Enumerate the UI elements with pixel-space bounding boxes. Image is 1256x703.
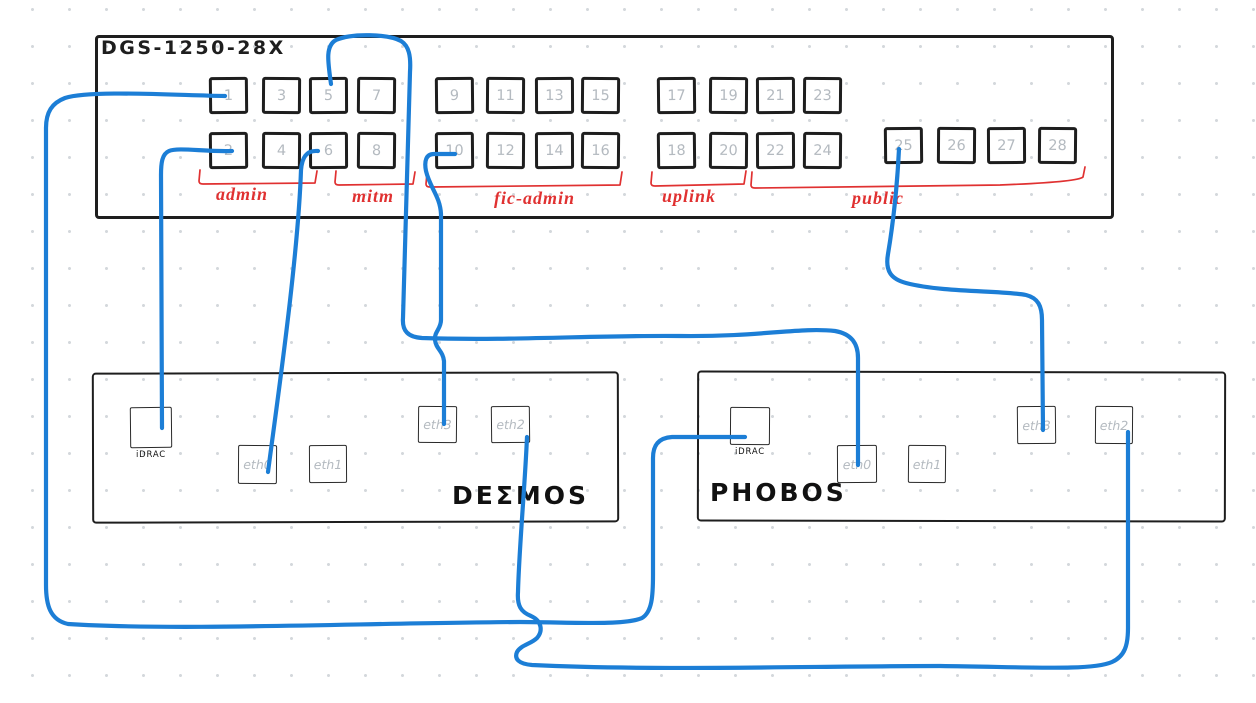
phobos-eth0-label: eth0 <box>843 456 872 471</box>
switch-port-number: 3 <box>277 87 286 103</box>
port-group-label-public: public <box>852 188 904 209</box>
switch-port-box: 1 <box>209 77 248 114</box>
deimos-eth1-port: eth1 <box>309 445 347 483</box>
port-group-label-admin: admin <box>216 184 268 205</box>
diagram-canvas: DGS-1250-28X admin mitm fic-admin uplink… <box>0 0 1256 703</box>
switch-port-number: 28 <box>1048 137 1067 153</box>
switch-port-box: 19 <box>709 77 748 114</box>
switch-port-box: 20 <box>709 132 748 169</box>
deimos-eth3-label: eth3 <box>423 417 452 432</box>
deimos-eth3-port: eth3 <box>418 406 457 443</box>
switch-port-number: 16 <box>591 142 610 158</box>
switch-port-box: 22 <box>756 132 795 169</box>
switch-port-number: 12 <box>496 142 515 158</box>
switch-port-box: 15 <box>581 77 620 114</box>
phobos-eth1-port: eth1 <box>908 445 946 483</box>
switch-port-number: 13 <box>545 87 564 103</box>
server-name-phobos: PHOBOS <box>710 478 847 507</box>
switch-port-number: 25 <box>894 137 913 153</box>
switch-port-box: 18 <box>657 132 696 169</box>
switch-port-box: 27 <box>987 127 1026 164</box>
port-group-label-mitm: mitm <box>352 186 394 207</box>
switch-port-box: 12 <box>486 132 525 169</box>
switch-port-number: 26 <box>947 137 966 153</box>
switch-port-box: 21 <box>756 77 795 114</box>
switch-port-box: 28 <box>1038 127 1077 164</box>
server-name-deimos: DEΣMOS <box>452 481 589 510</box>
switch-port-number: 19 <box>719 87 738 103</box>
switch-port-number: 24 <box>813 142 832 158</box>
phobos-idrac-port <box>730 407 770 445</box>
switch-port-box: 24 <box>803 132 842 169</box>
switch-port-box: 25 <box>884 127 923 164</box>
switch-port-box: 6 <box>309 132 348 169</box>
switch-port-number: 21 <box>766 87 785 103</box>
deimos-eth2-port: eth2 <box>491 406 530 443</box>
switch-port-box: 13 <box>535 77 574 114</box>
switch-port-box: 23 <box>803 77 842 114</box>
switch-port-number: 5 <box>324 87 333 103</box>
switch-port-box: 2 <box>209 132 248 169</box>
switch-port-box: 11 <box>486 77 525 114</box>
switch-port-number: 17 <box>667 87 686 103</box>
switch-port-number: 14 <box>545 142 564 158</box>
switch-port-box: 17 <box>657 77 696 114</box>
switch-port-box: 4 <box>262 132 301 169</box>
deimos-idrac-port <box>130 407 172 448</box>
deimos-eth0-label: eth0 <box>243 457 272 472</box>
port-group-label-uplink: uplink <box>662 186 716 207</box>
switch-port-number: 1 <box>224 87 233 103</box>
deimos-eth2-label: eth2 <box>496 417 525 432</box>
deimos-eth0-port: eth0 <box>238 445 277 484</box>
switch-port-box: 8 <box>357 132 396 169</box>
switch-port-box: 14 <box>535 132 574 169</box>
port-group-label-fic-admin: fic-admin <box>494 188 575 209</box>
phobos-eth3-port: eth3 <box>1017 406 1056 444</box>
switch-port-number: 15 <box>591 87 610 103</box>
phobos-eth2-port: eth2 <box>1095 406 1133 444</box>
switch-port-number: 20 <box>719 142 738 158</box>
switch-port-number: 18 <box>667 142 686 158</box>
switch-port-number: 7 <box>372 87 381 103</box>
switch-port-number: 23 <box>813 87 832 103</box>
deimos-eth1-label: eth1 <box>314 456 343 471</box>
switch-port-box: 3 <box>262 77 301 114</box>
switch-port-box: 7 <box>357 77 396 114</box>
switch-port-number: 11 <box>496 87 515 103</box>
switch-port-number: 9 <box>450 87 459 103</box>
phobos-eth1-label: eth1 <box>913 456 942 471</box>
phobos-idrac-label: iDRAC <box>724 447 776 457</box>
switch-port-box: 16 <box>581 132 620 169</box>
deimos-idrac-label: iDRAC <box>124 450 178 460</box>
switch-port-box: 9 <box>435 77 474 114</box>
switch-port-box: 5 <box>309 77 348 114</box>
switch-port-box: 26 <box>937 127 976 164</box>
switch-port-number: 27 <box>997 137 1016 153</box>
switch-port-number: 6 <box>324 142 333 158</box>
phobos-eth2-label: eth2 <box>1100 417 1129 432</box>
switch-title: DGS-1250-28X <box>101 37 286 59</box>
switch-port-number: 8 <box>372 142 381 158</box>
switch-port-number: 2 <box>224 142 233 158</box>
switch-port-number: 10 <box>445 142 464 158</box>
switch-port-number: 4 <box>277 142 286 158</box>
phobos-eth3-label: eth3 <box>1022 417 1051 432</box>
switch-port-number: 22 <box>766 142 785 158</box>
switch-port-box: 10 <box>435 132 474 169</box>
